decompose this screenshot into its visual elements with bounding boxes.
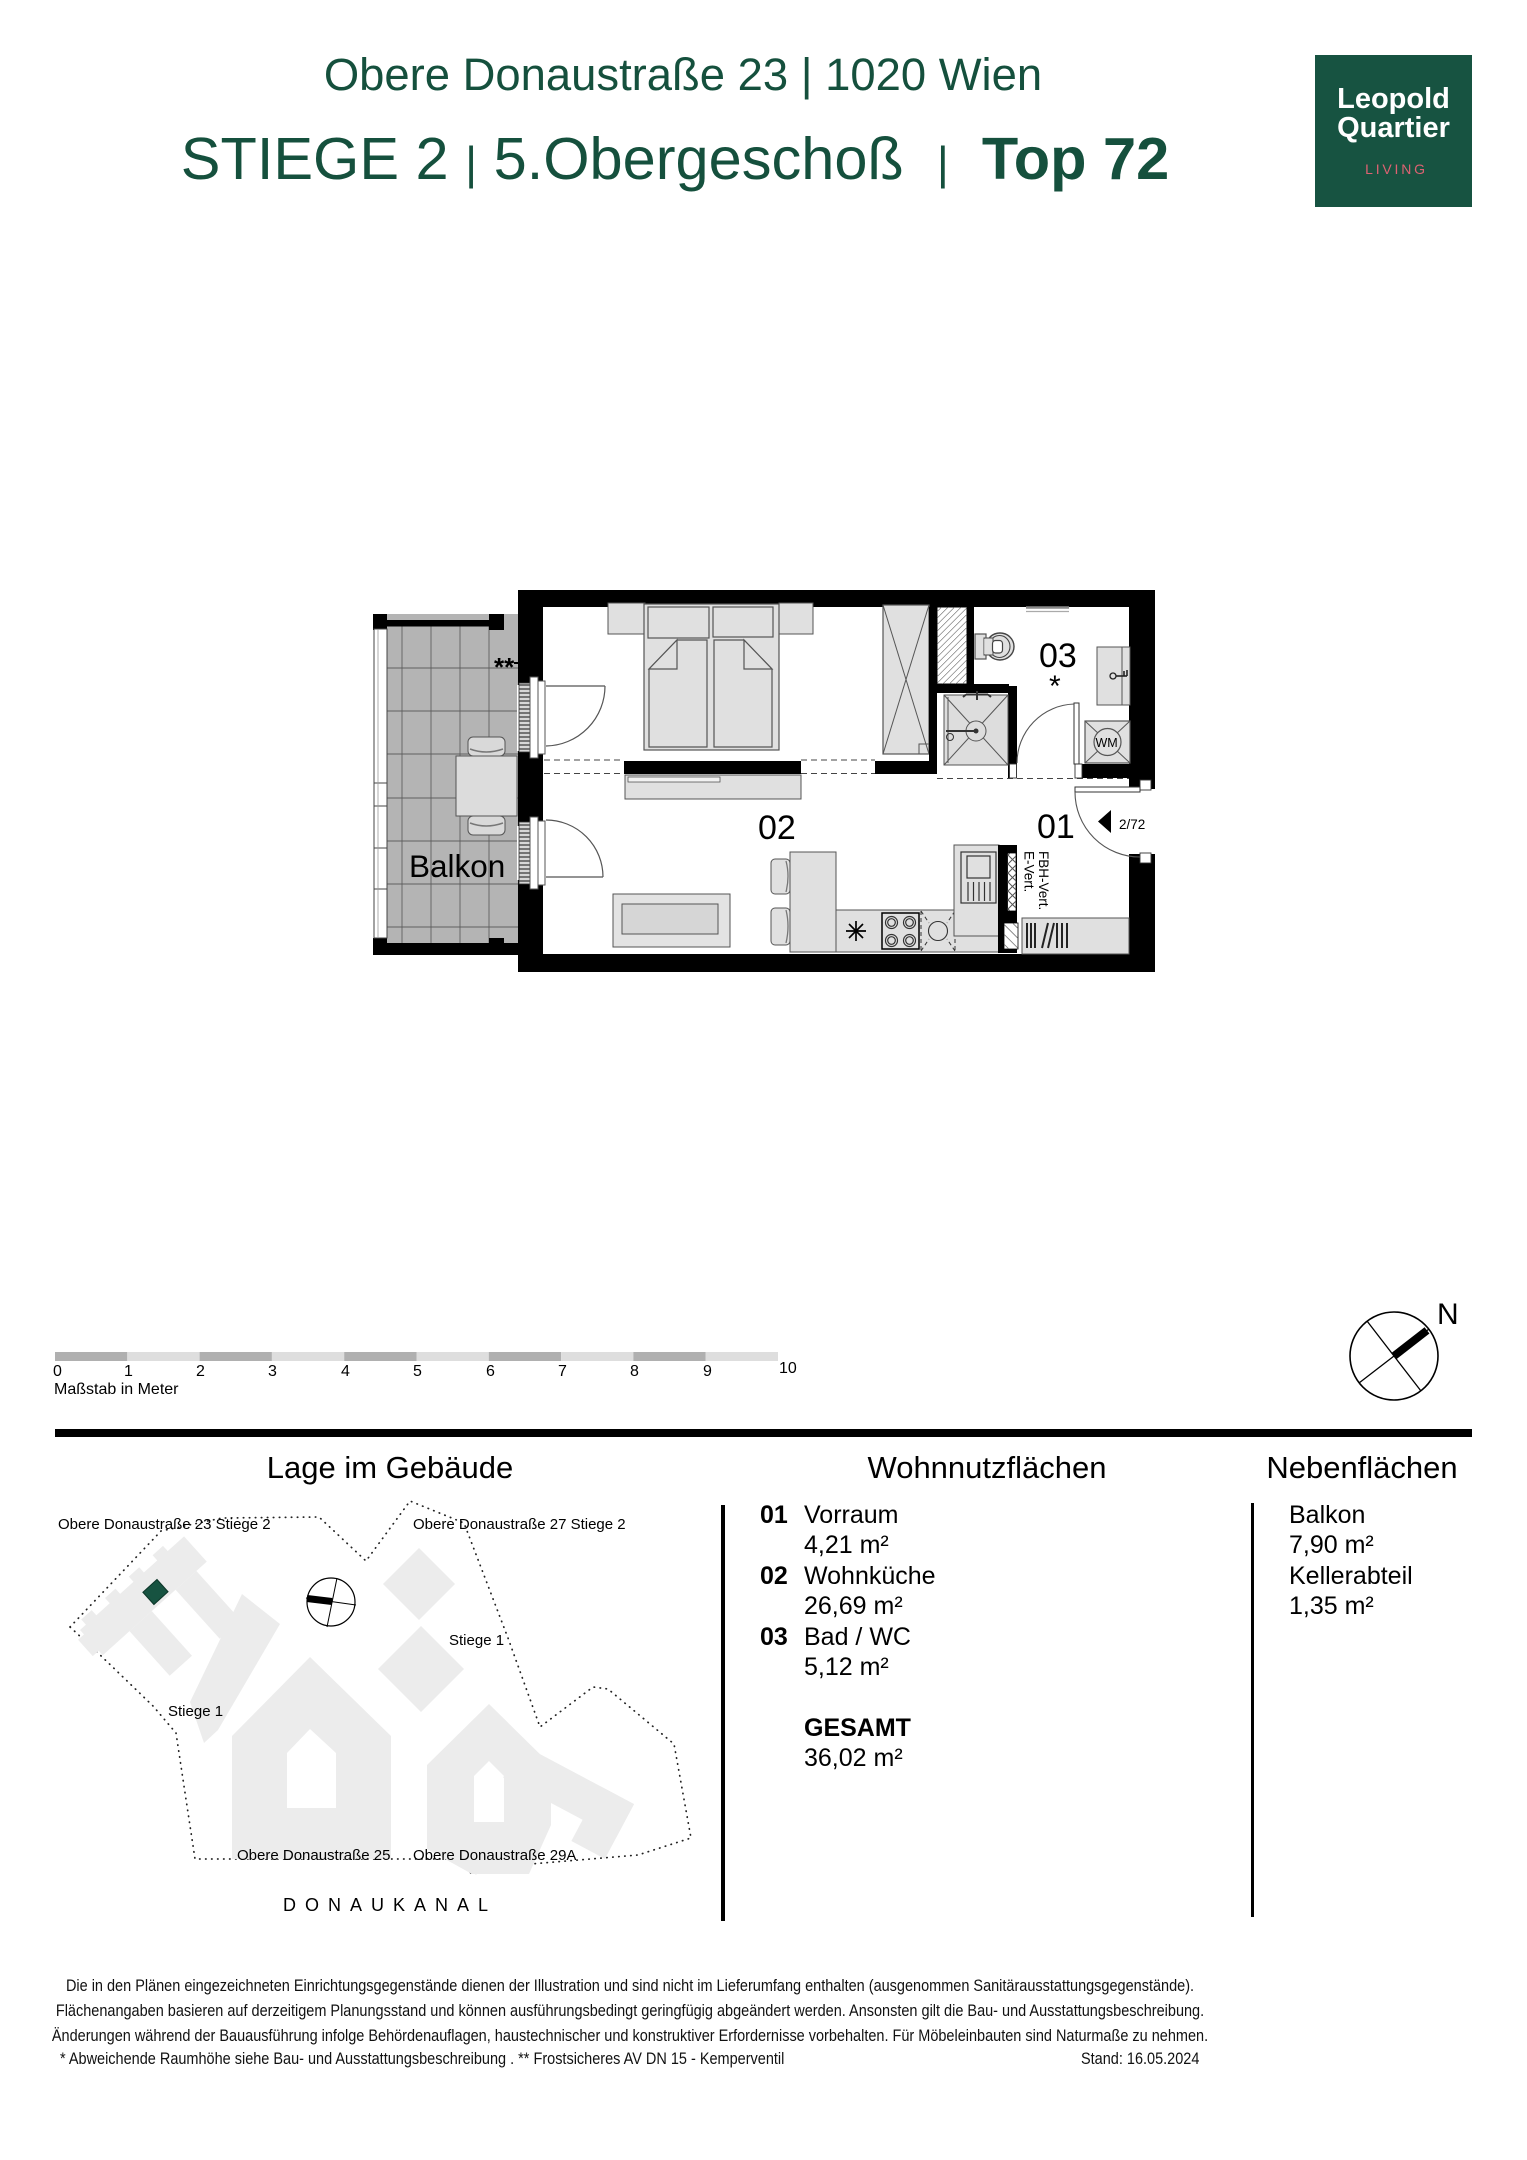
svg-text:4: 4 (341, 1363, 350, 1380)
svg-text:DONAUKANAL: DONAUKANAL (283, 1895, 497, 1915)
svg-text:Obere Donaustraße 27 Stiege 2: Obere Donaustraße 27 Stiege 2 (413, 1516, 626, 1533)
svg-text:01: 01 (1037, 808, 1075, 846)
svg-text:Obere Donaustraße 25: Obere Donaustraße 25 (237, 1847, 390, 1864)
svg-text:02: 02 (758, 809, 796, 847)
svg-text:N: N (1437, 1298, 1459, 1331)
svg-text:1: 1 (124, 1363, 133, 1380)
svg-text:*: * (1049, 670, 1061, 703)
svg-text:Stiege 1: Stiege 1 (449, 1632, 504, 1649)
svg-text:Stiege 1: Stiege 1 (168, 1703, 223, 1720)
svg-text:2/72: 2/72 (1119, 817, 1145, 832)
svg-text:Obere Donaustraße 23 Stiege 2: Obere Donaustraße 23 Stiege 2 (58, 1516, 271, 1533)
svg-text:FBH-Vert.E-Vert.: FBH-Vert.E-Vert. (1022, 851, 1052, 910)
svg-text:8: 8 (630, 1363, 639, 1380)
svg-text:10: 10 (779, 1360, 797, 1377)
svg-text:**: ** (494, 652, 515, 682)
svg-text:7: 7 (558, 1363, 567, 1380)
svg-text:6: 6 (486, 1363, 495, 1380)
svg-text:WM: WM (1096, 736, 1118, 750)
svg-text:0: 0 (53, 1363, 62, 1380)
svg-text:Obere Donaustraße 29A: Obere Donaustraße 29A (413, 1847, 576, 1864)
svg-text:Balkon: Balkon (409, 848, 505, 884)
svg-text:3: 3 (268, 1363, 277, 1380)
svg-text:5: 5 (413, 1363, 422, 1380)
svg-text:Maßstab in Meter: Maßstab in Meter (54, 1381, 179, 1398)
svg-text:2: 2 (196, 1363, 205, 1380)
svg-text:9: 9 (703, 1363, 712, 1380)
